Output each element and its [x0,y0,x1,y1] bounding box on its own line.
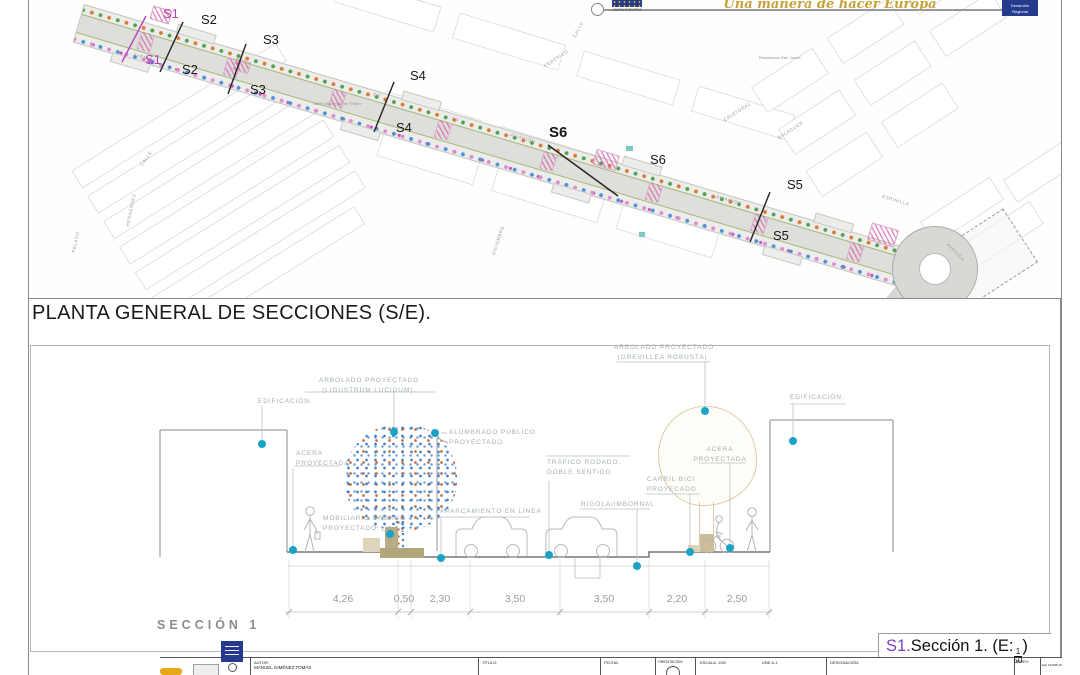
plan-divider-line [28,298,1061,299]
eu-flag-caption: UNIÓN EUROPEA [604,8,650,12]
callout-aparcamiento: APARCAMIENTO EN LÍNEA [440,507,542,517]
tree-trunk-grevillea [699,502,714,548]
tree-row-top [82,5,933,264]
dimension-value: 2,30 [430,593,450,605]
street-label: CALLE [572,21,585,39]
header-circle-marker [591,3,604,16]
section-name: SECCIÓN 1 [157,618,260,632]
exp-label: Exp 1519/B-19 [1042,663,1062,667]
titulo-label: TÍTULO: [482,660,497,665]
callout-mobiliario: MOBILIARIO URBANO PROYECTADO. [323,514,406,534]
street-label: DICIEMBRE [491,225,505,255]
callout-line: APARCAMIENTO EN LÍNEA [440,508,542,515]
section-marker-s3: S3 [263,32,279,47]
dimension-value: 4,26 [333,593,353,605]
callout-line: DOBLE SENTIDO [547,469,611,476]
section-marker-s3: S3 [250,82,266,97]
orientacion-label: ORIENTACIÓN: [658,660,683,664]
dimension-value: 0,50 [394,593,414,605]
callout-line: ARBOLADO PROYECTADO [614,344,714,351]
cell-border [826,658,827,675]
street-label: HERNÁNDEZ [125,193,137,227]
fecha-label: FECHA: [604,660,619,665]
cell-border [478,658,479,675]
caption-prefix: S1. [886,637,911,655]
section-marker-s5: S5 [787,177,803,192]
city-plan-map: AVENIDA DE LA AVIACIÓN AVIACIÓN ESPINILL… [29,0,1061,298]
eu-motto: Una manera de hacer Europa [700,0,960,12]
callout-line: PROYECTADO. [323,525,380,532]
nrev-label: Nº/REV: [1016,660,1029,664]
callout-line: CARRIL BICI [647,476,695,483]
callout-line: MOBILIARIO URBANO [323,515,406,522]
designacion-label: DESIGNACIÓN: [830,660,859,665]
section-marker-s2: S2 [201,12,217,27]
cell-border [250,658,251,675]
cell-border [655,658,656,675]
dimension-value: 2,50 [727,593,747,605]
callout-line: PROYECTADA [296,460,349,467]
dimension-value: 3,50 [594,593,614,605]
callout-line: ALUMBRADO PÚBLICO [449,429,536,436]
callout-line: EDIFICACIÓN. [258,398,313,405]
section-drawing-box [30,345,1050,652]
section-marker-s6: S6 [650,152,666,167]
callout-line: ACERA [296,450,323,457]
callout-acera-left: ACERA PROYECTADA [296,449,349,469]
section-marker-s6: S6 [549,124,567,141]
callout-arbolado-grevillea: ARBOLADO PROYECTADO (GREVILLEA ROBUSTA). [614,343,714,363]
callout-line: ACERA [707,446,734,453]
roadway [76,14,930,285]
callout-acera-right: ACERA PROYECTADA [690,445,750,465]
dimension-value: 3,50 [505,593,525,605]
callout-trafico: TRÁFICO RODADO. DOBLE SENTIDO [547,458,621,478]
caption-body: Sección 1. (E: [911,637,1014,655]
callout-line: EDIFICACIÓN. [790,394,845,401]
section-marker-s4: S4 [410,68,426,83]
plan-teal-area [639,232,645,237]
section-marker-s2: S2 [182,62,198,77]
street-label: FEDERICO [543,49,569,68]
section-marker-s1: S1 [163,6,179,21]
street-label: BALAGUER [777,120,804,140]
callout-line: ARBOLADO PROYECTADO [319,377,419,384]
plan-teal-area [626,146,633,151]
callout-alumbrado: ALUMBRADO PÚBLICO PROYECTADO. [449,428,536,448]
callout-line: PROYECTADA [693,456,746,463]
drawing-sheet: UNIÓN EUROPEA Una manera de hacer Europa… [0,0,1080,675]
dimension-value: 2,20 [667,593,687,605]
street-label: ESPINILLA [882,194,910,207]
callout-line: RIGOLA/IMBORNAL [581,501,655,508]
mini-blue-logo [221,641,243,662]
footer-logo-gray [193,664,219,675]
section-marker-s1: S1 [145,52,161,67]
program-box: Desarrollo Regional [1002,0,1038,16]
section-marker-s4: S4 [396,120,412,135]
callout-edificacion-right: EDIFICACIÓN. [790,393,845,403]
callout-line: (LIGUSTRUM LUCIDUM). [322,387,416,394]
titleblock-connector-circle [228,663,237,672]
callout-arbolado-ligustrum: ARBOLADO PROYECTADO (LIGUSTRUM LUCIDUM). [303,376,435,396]
cell-border [600,658,601,675]
plan-title: PLANTA GENERAL DE SECCIONES (S/E). [32,302,431,325]
une-label: UNE A-1 [762,660,778,665]
map-note: Taller Municipal de Teatro [313,102,361,106]
callout-rigola: RIGOLA/IMBORNAL [581,500,655,510]
caption-close: ) [1022,637,1028,655]
street-label: CRISTÓBAL [723,101,752,122]
compass-icon [666,666,680,675]
escala-label: ESCALA: 1/50 [700,660,726,665]
eu-flag-logo [612,0,642,7]
roundabout-island [919,253,951,285]
avenue-band [73,4,935,294]
street-label: PELAYO [71,231,80,253]
cell-border [695,658,696,675]
callout-edificacion-left: EDIFICACIÓN. [258,397,313,407]
map-note: Residencia San Javier [759,56,801,60]
callout-carril-bici: CARRIL BICI PROYECADO [647,475,697,495]
callout-line: TRÁFICO RODADO. [547,459,621,466]
section-marker-s5: S5 [773,228,789,243]
street-label: CALLE [139,150,153,167]
callout-line: PROYECTADO. [449,439,506,446]
callout-line: PROYECADO [647,486,697,493]
callout-line: (GREVILLEA ROBUSTA). [618,354,711,361]
footer-logo-yellow [160,668,182,675]
mini-logo-text-lines [225,646,239,656]
program-box-line2: Regional [1002,9,1038,15]
autor-value: MANUEL GIMÉNEZ TOMÁS [254,665,311,670]
